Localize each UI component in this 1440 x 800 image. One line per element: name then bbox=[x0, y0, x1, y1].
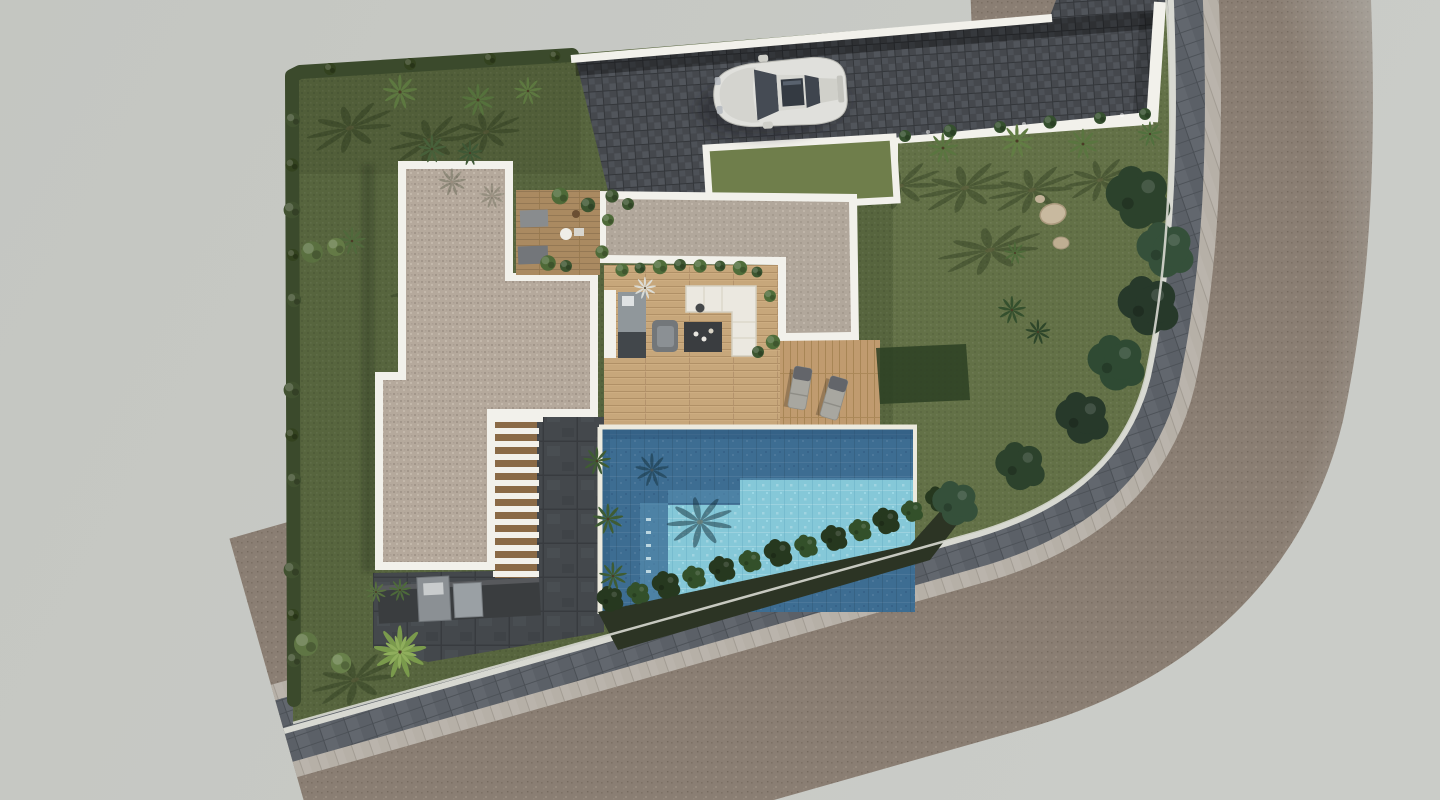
car-mirror-left bbox=[758, 54, 768, 62]
car-mirror-right bbox=[763, 121, 773, 129]
courtyard-table bbox=[560, 228, 572, 240]
pergola-stair bbox=[489, 410, 543, 578]
car-rear-glass bbox=[804, 74, 820, 108]
kitchen-unit-2 bbox=[453, 582, 483, 617]
deck-tree-shadow bbox=[876, 344, 970, 404]
site-plan-render bbox=[0, 0, 1440, 800]
site-plan-canvas bbox=[0, 0, 1440, 800]
courtyard-mat-1 bbox=[520, 210, 549, 228]
roof-left-shadow bbox=[362, 164, 374, 572]
